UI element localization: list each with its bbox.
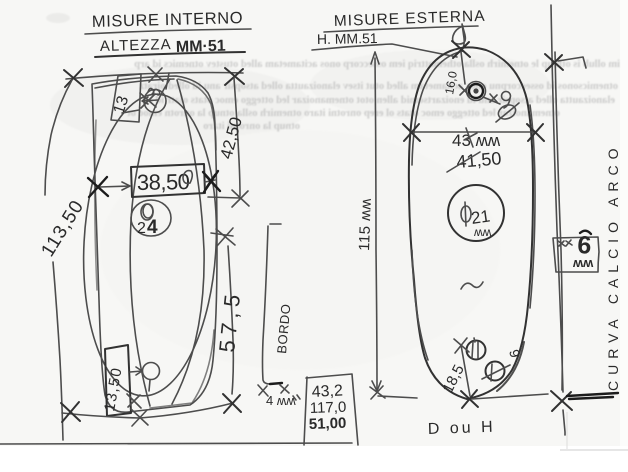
svg-text:otnemicsonos id osseccorpnu on: otnemicsonos id osseccorpnu onos acitame… — [139, 81, 618, 92]
svg-text:ʍʍ: ʍʍ — [474, 225, 492, 239]
svg-text:CURVA CALCIO ARCO: CURVA CALCIO ARCO — [605, 142, 621, 391]
svg-text:4: 4 — [147, 217, 158, 238]
svg-text:ʍʍ: ʍʍ — [572, 255, 594, 270]
svg-text:38,50: 38,50 — [137, 169, 190, 195]
svg-text:2: 2 — [137, 220, 146, 237]
svg-text:41,50: 41,50 — [456, 148, 503, 172]
svg-text:51,00: 51,00 — [309, 415, 347, 433]
svg-text:im ollub is othiup le otnemirh: im ollub is othiup le otnemirh oslla oth… — [134, 59, 620, 70]
svg-text:otnup la onrotni itaro: otnup la onrotni itaro — [203, 121, 300, 132]
svg-text:otnemanoizar led otteggo emoc: otnemanoizar led otteggo emoc otats ol e… — [127, 108, 560, 119]
svg-text:115 ʍʍ: 115 ʍʍ — [356, 198, 375, 251]
svg-text:4 ʍʍ: 4 ʍʍ — [266, 393, 296, 408]
svg-text:elanoizautta olled atsopsir an: elanoizautta olled atsopsir anu id enoiz… — [143, 95, 615, 106]
svg-text:H. MM.51: H. MM.51 — [317, 30, 378, 47]
svg-text:D ou H: D ou H — [428, 419, 496, 438]
svg-text:ALTEZZA: ALTEZZA — [100, 36, 172, 55]
